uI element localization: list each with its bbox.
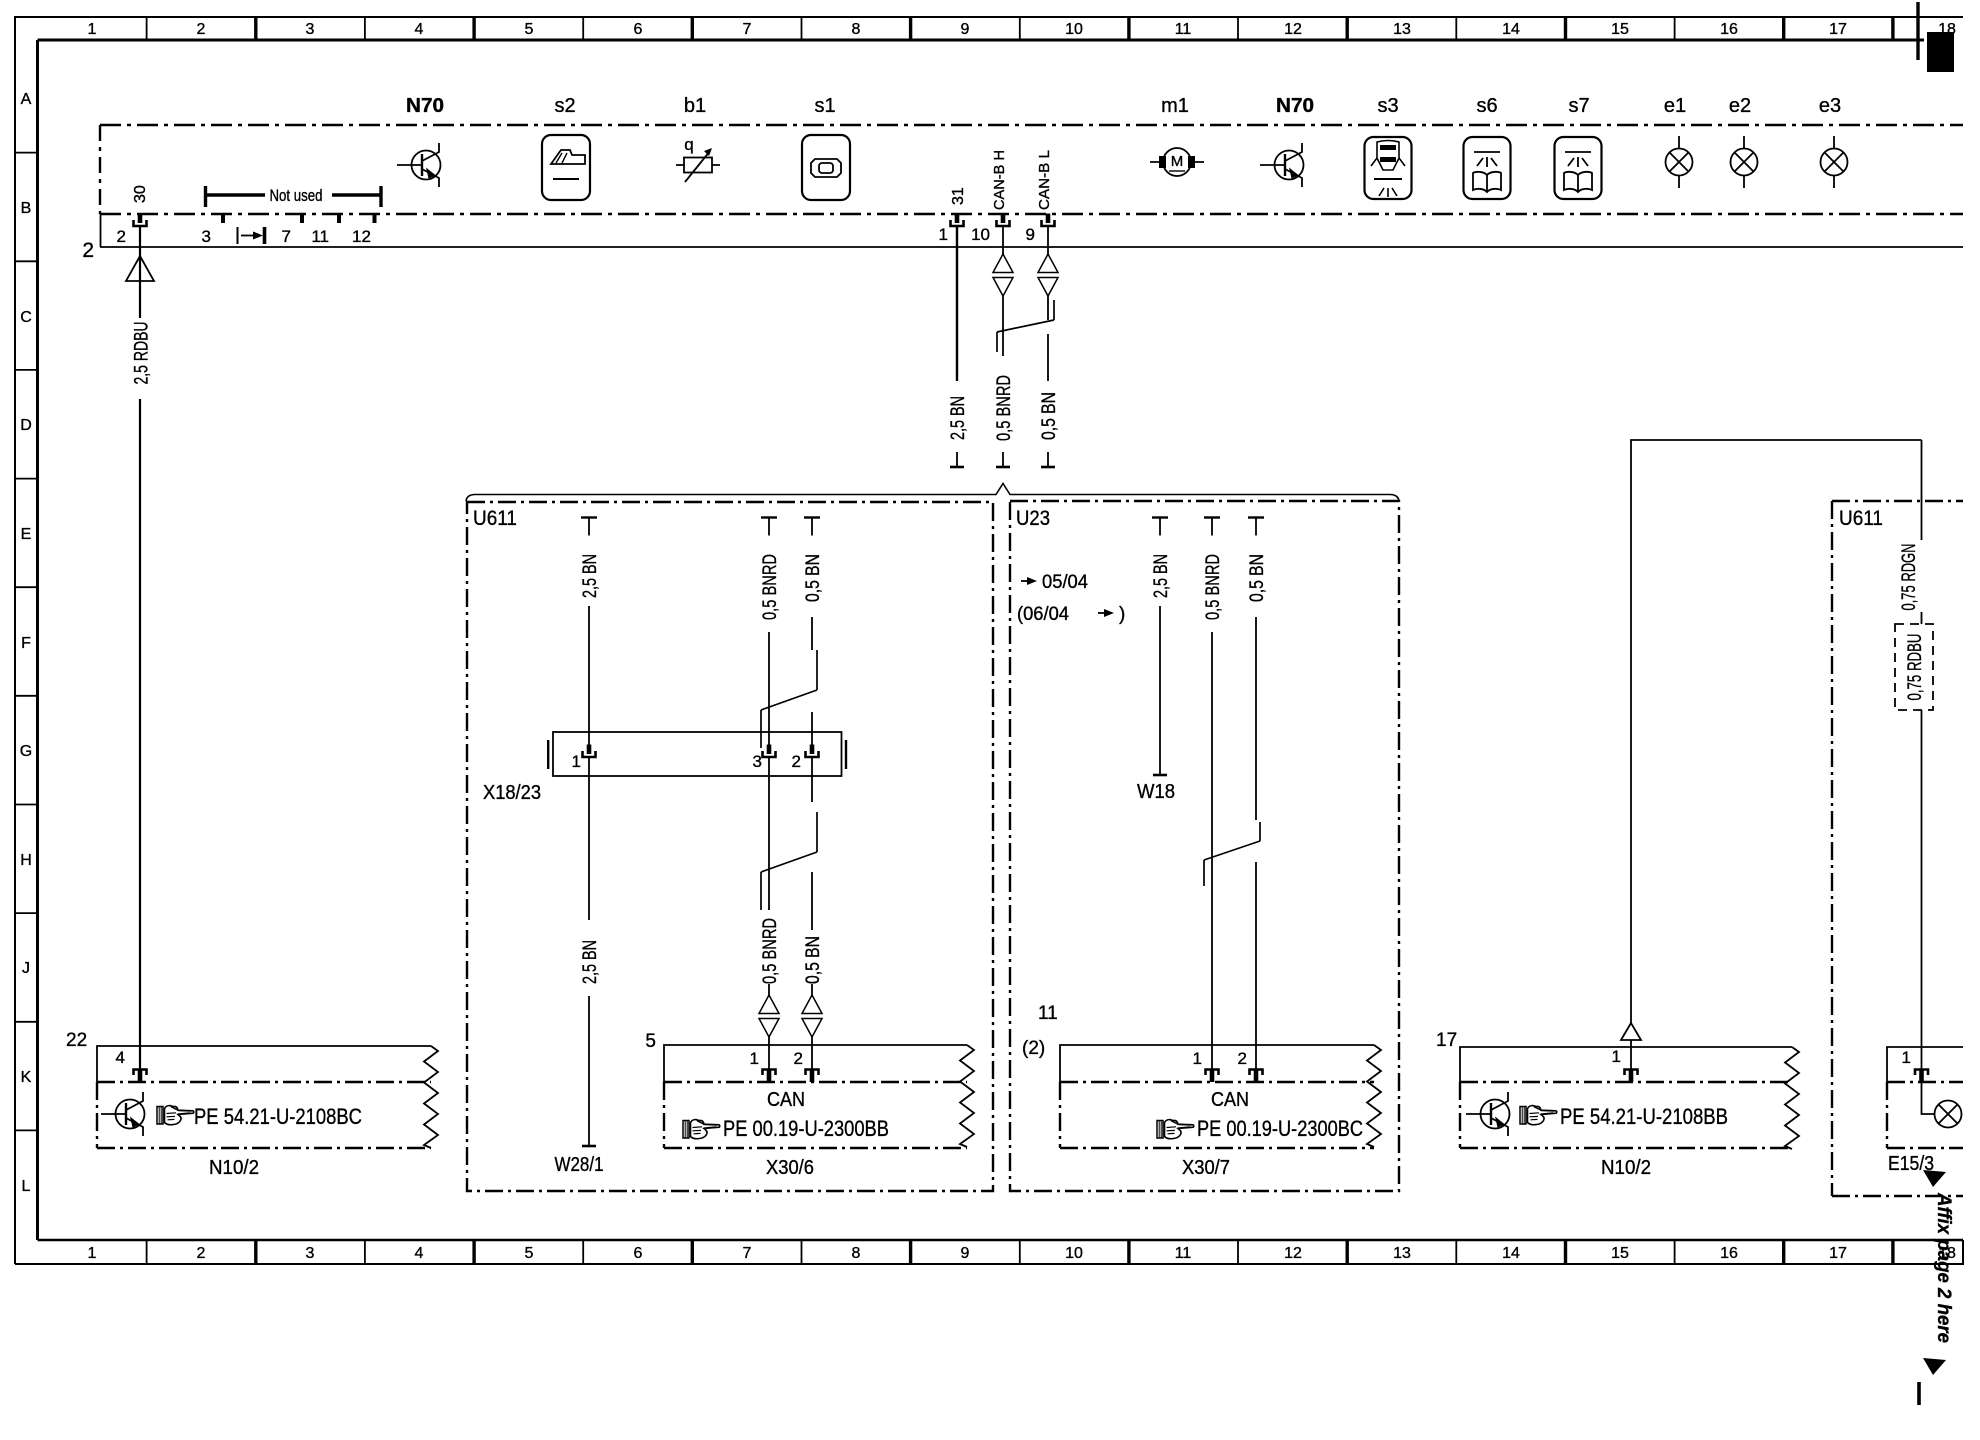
svg-text:13: 13 xyxy=(1393,1245,1411,1262)
svg-text:U611: U611 xyxy=(473,507,517,530)
svg-text:9: 9 xyxy=(961,1245,970,1262)
svg-text:1: 1 xyxy=(1902,1048,1911,1067)
svg-text:12: 12 xyxy=(1284,1245,1302,1262)
svg-text:5: 5 xyxy=(525,1245,534,1262)
svg-text:N70: N70 xyxy=(406,95,444,117)
svg-text:15: 15 xyxy=(1611,21,1629,38)
svg-text:CAN-B L: CAN-B L xyxy=(1036,150,1053,210)
svg-text:8: 8 xyxy=(852,1245,861,1262)
svg-text:s7: s7 xyxy=(1568,95,1589,117)
svg-text:17: 17 xyxy=(1436,1030,1457,1051)
svg-text:e1: e1 xyxy=(1664,95,1686,117)
svg-text:J: J xyxy=(22,960,30,977)
svg-text:q: q xyxy=(684,135,693,154)
svg-text:14: 14 xyxy=(1502,21,1520,38)
svg-text:Affix page 2 here: Affix page 2 here xyxy=(1933,1192,1955,1343)
svg-text:0,5 BNRD: 0,5 BNRD xyxy=(994,375,1015,441)
svg-text:0,5 BN: 0,5 BN xyxy=(803,936,824,984)
svg-text:6: 6 xyxy=(634,21,643,38)
svg-text:E15/3: E15/3 xyxy=(1888,1153,1934,1175)
svg-text:4: 4 xyxy=(116,1048,125,1067)
svg-text:12: 12 xyxy=(1284,21,1302,38)
svg-text:(2): (2) xyxy=(1022,1038,1045,1059)
svg-text:W18: W18 xyxy=(1137,781,1175,803)
svg-text:2: 2 xyxy=(1238,1049,1247,1068)
svg-text:C: C xyxy=(20,309,32,326)
svg-text:7: 7 xyxy=(743,1245,752,1262)
svg-text:PE 54.21-U-2108BC: PE 54.21-U-2108BC xyxy=(194,1104,362,1129)
svg-text:5: 5 xyxy=(645,1031,656,1052)
svg-text:3: 3 xyxy=(202,227,211,246)
svg-text:e3: e3 xyxy=(1819,95,1841,117)
svg-text:2,5 BN: 2,5 BN xyxy=(948,396,969,440)
svg-text:0,5 BNRD: 0,5 BNRD xyxy=(760,918,781,984)
svg-text:0,5 BN: 0,5 BN xyxy=(803,554,824,602)
svg-text:0,5 BNRD: 0,5 BNRD xyxy=(760,554,781,620)
svg-text:U611: U611 xyxy=(1839,507,1883,530)
svg-text:2,5 RDBU: 2,5 RDBU xyxy=(132,322,153,385)
svg-text:0,75 RDGN: 0,75 RDGN xyxy=(1899,544,1920,611)
svg-text:2: 2 xyxy=(197,21,206,38)
svg-text:1: 1 xyxy=(939,225,948,244)
svg-text:15: 15 xyxy=(1611,1245,1629,1262)
svg-text:2,5 BN: 2,5 BN xyxy=(580,554,601,598)
svg-text:A: A xyxy=(21,91,32,108)
svg-text:17: 17 xyxy=(1829,1245,1847,1262)
svg-text:CAN: CAN xyxy=(1211,1089,1249,1111)
svg-text:2,5 BN: 2,5 BN xyxy=(1151,554,1172,598)
svg-text:2: 2 xyxy=(82,239,94,262)
svg-text:1: 1 xyxy=(572,752,581,771)
svg-text:11: 11 xyxy=(311,227,329,246)
svg-text:7: 7 xyxy=(743,21,752,38)
svg-text:1: 1 xyxy=(1193,1049,1202,1068)
svg-text:PE 00.19-U-2300BC: PE 00.19-U-2300BC xyxy=(1197,1116,1363,1141)
svg-text:L: L xyxy=(22,1178,31,1195)
svg-text:16: 16 xyxy=(1720,21,1738,38)
svg-text:CAN-B H: CAN-B H xyxy=(991,150,1008,210)
svg-text:e2: e2 xyxy=(1729,95,1751,117)
svg-text:s3: s3 xyxy=(1377,95,1398,117)
svg-text:b1: b1 xyxy=(684,95,706,117)
svg-text:0,5 BNRD: 0,5 BNRD xyxy=(1203,554,1224,620)
svg-text:5: 5 xyxy=(525,21,534,38)
svg-text:9: 9 xyxy=(1026,225,1035,244)
svg-text:2: 2 xyxy=(792,752,801,771)
svg-text:W28/1: W28/1 xyxy=(555,1154,604,1176)
svg-text:N70: N70 xyxy=(1276,95,1314,117)
svg-text:11: 11 xyxy=(1038,1003,1058,1024)
svg-text:s1: s1 xyxy=(814,95,835,117)
svg-text:G: G xyxy=(20,743,32,760)
svg-text:m1: m1 xyxy=(1161,95,1189,117)
svg-text:X30/7: X30/7 xyxy=(1182,1157,1230,1179)
svg-text:12: 12 xyxy=(352,227,371,246)
svg-text:2: 2 xyxy=(197,1245,206,1262)
svg-text:3: 3 xyxy=(753,752,762,771)
svg-text:6: 6 xyxy=(634,1245,643,1262)
svg-text:B: B xyxy=(21,200,32,217)
svg-text:H: H xyxy=(20,852,32,869)
svg-text:U23: U23 xyxy=(1016,507,1050,530)
svg-text:D: D xyxy=(20,417,32,434)
svg-text:s2: s2 xyxy=(554,95,575,117)
svg-text:8: 8 xyxy=(852,21,861,38)
svg-text:2: 2 xyxy=(117,227,126,246)
svg-text:E: E xyxy=(21,526,32,543)
svg-text:10: 10 xyxy=(1065,1245,1083,1262)
svg-text:M: M xyxy=(1171,153,1184,170)
svg-text:16: 16 xyxy=(1720,1245,1738,1262)
svg-text:9: 9 xyxy=(961,21,970,38)
svg-text:10: 10 xyxy=(971,225,990,244)
svg-text:X30/6: X30/6 xyxy=(766,1157,814,1179)
svg-text:2,5 BN: 2,5 BN xyxy=(580,940,601,984)
svg-text:PE 00.19-U-2300BB: PE 00.19-U-2300BB xyxy=(723,1116,889,1141)
svg-text:3: 3 xyxy=(306,21,315,38)
svg-text:05/04: 05/04 xyxy=(1042,572,1088,593)
svg-text:0,5 BN: 0,5 BN xyxy=(1039,392,1060,440)
svg-text:31: 31 xyxy=(950,187,967,205)
svg-text:2: 2 xyxy=(794,1049,803,1068)
svg-text:0,75 RDBU: 0,75 RDBU xyxy=(1905,634,1926,701)
svg-text:1: 1 xyxy=(750,1049,759,1068)
svg-text:13: 13 xyxy=(1393,21,1411,38)
svg-text:Not used: Not used xyxy=(270,186,323,205)
svg-text:N10/2: N10/2 xyxy=(209,1157,259,1179)
svg-text:K: K xyxy=(21,1069,32,1086)
svg-text:(06/04: (06/04 xyxy=(1017,604,1069,625)
svg-text:7: 7 xyxy=(282,227,291,246)
svg-text:X18/23: X18/23 xyxy=(483,782,541,804)
svg-text:0,5 BN: 0,5 BN xyxy=(1247,554,1268,602)
svg-text:11: 11 xyxy=(1175,21,1192,38)
svg-text:F: F xyxy=(21,635,31,652)
svg-text:1: 1 xyxy=(88,21,97,38)
svg-text:11: 11 xyxy=(1175,1245,1192,1262)
svg-text:4: 4 xyxy=(415,21,424,38)
svg-text:1: 1 xyxy=(88,1245,97,1262)
svg-text:1: 1 xyxy=(1612,1047,1621,1066)
svg-text:N10/2: N10/2 xyxy=(1601,1157,1651,1179)
svg-text:30: 30 xyxy=(132,185,149,203)
svg-text:s6: s6 xyxy=(1476,95,1497,117)
svg-text:CAN: CAN xyxy=(767,1089,805,1111)
svg-text:22: 22 xyxy=(66,1030,87,1051)
svg-text:4: 4 xyxy=(415,1245,424,1262)
svg-text:14: 14 xyxy=(1502,1245,1520,1262)
svg-text:3: 3 xyxy=(306,1245,315,1262)
svg-text:): ) xyxy=(1119,604,1125,625)
svg-text:PE 54.21-U-2108BB: PE 54.21-U-2108BB xyxy=(1560,1104,1728,1129)
svg-text:17: 17 xyxy=(1829,21,1847,38)
svg-text:10: 10 xyxy=(1065,21,1083,38)
